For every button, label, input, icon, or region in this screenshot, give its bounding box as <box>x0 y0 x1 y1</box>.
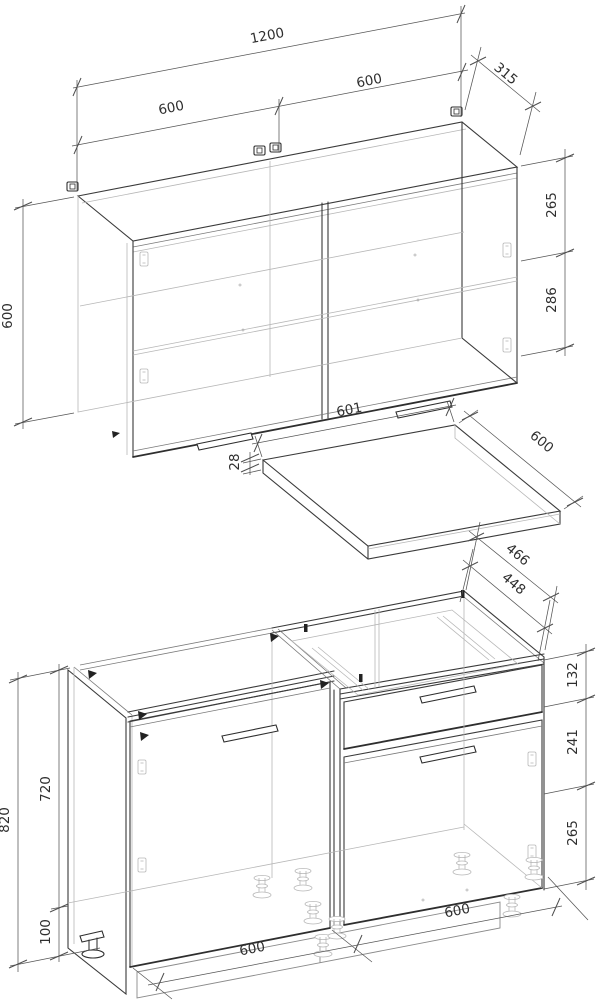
door-handle <box>222 725 278 742</box>
sink-door-bottom <box>130 928 330 967</box>
dim-base-middle-height: 241 <box>565 729 581 755</box>
dim-wall-hinge-top-offset: 265 <box>544 192 560 218</box>
dim-countertop-depth: 600 <box>527 428 557 457</box>
hinge-icon <box>528 752 536 766</box>
door-handle <box>396 401 452 418</box>
dim-wall-total-width: 1200 <box>249 25 286 47</box>
dim-wall-height: 600 <box>0 303 16 329</box>
hinge-icon <box>503 243 511 257</box>
dim-base-leg-height: 100 <box>38 919 54 945</box>
dim-wall-hinge-spacing: 286 <box>544 287 560 313</box>
dim-base-drawer-front-height: 132 <box>565 662 581 688</box>
dim-base-lower-height: 265 <box>565 820 581 846</box>
wall-cabinet-shelf <box>80 232 517 355</box>
kitchen-cabinet-assembly-drawing: 1200 600 600 315 600 265 286 601 600 28 … <box>0 0 600 1000</box>
dim-base-right-section-width: 600 <box>443 901 471 922</box>
countertop-view <box>263 425 560 559</box>
hinge-icon <box>528 845 536 859</box>
wall-cabinet-door-edges <box>133 167 517 457</box>
dim-base-left-section-width: 600 <box>238 939 266 960</box>
hinge-icon <box>138 858 146 872</box>
technical-drawing-page: 1200 600 600 315 600 265 286 601 600 28 … <box>0 0 600 1000</box>
sink-front-rail <box>128 671 334 722</box>
hinge-icon <box>503 338 511 352</box>
dim-wall-right-door-width: 600 <box>355 71 383 92</box>
wall-cabinet-door-seam <box>322 202 328 419</box>
hinge-icon <box>138 760 146 774</box>
drawer-handle <box>420 686 476 703</box>
wall-cabinet-view <box>67 107 517 457</box>
dim-base-top-depth-inner: 448 <box>499 570 529 599</box>
dim-base-top-depth-outer: 466 <box>503 541 533 570</box>
sink-door <box>130 682 330 967</box>
adjustable-foot <box>80 931 104 958</box>
wall-bracket-icon <box>451 107 462 116</box>
dim-base-body-height: 720 <box>38 776 54 802</box>
wall-cabinet-bottom-edge <box>133 383 517 457</box>
door-handle <box>420 746 476 763</box>
dim-countertop-width: 601 <box>335 400 363 421</box>
drawer-front <box>344 665 542 749</box>
countertop-top-face <box>263 425 560 546</box>
dim-wall-depth: 315 <box>491 60 521 89</box>
hinge-icon <box>140 369 148 383</box>
fitting-marker <box>112 431 120 438</box>
dim-wall-left-door-width: 600 <box>157 98 185 119</box>
wall-cabinet-top-panel <box>78 122 517 241</box>
sink-back-rail <box>80 628 272 670</box>
base-partition <box>334 689 340 928</box>
wall-bracket-icon <box>254 146 265 155</box>
dim-base-total-height: 820 <box>0 807 13 833</box>
dim-countertop-thickness: 28 <box>227 453 243 470</box>
base-cabinet-view <box>68 590 544 998</box>
wall-bracket-icon <box>67 182 78 191</box>
door-handle <box>197 433 253 450</box>
base-top-frame <box>272 591 544 657</box>
hinge-icon <box>140 252 148 266</box>
